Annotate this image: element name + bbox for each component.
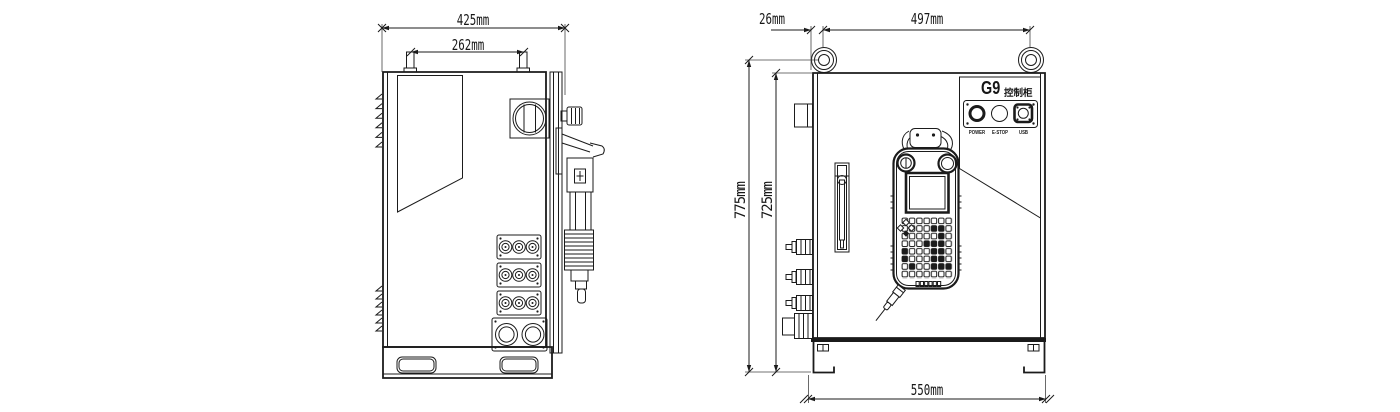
usb-label: USB [1017,130,1030,136]
nameplate-model: G9 [981,78,1000,99]
foot-right [1024,342,1045,373]
dim-label-26: 26mm [750,10,793,28]
drawing-linework [0,0,1400,412]
connector-plate-row2 [497,263,541,287]
teach-pendant-front [872,129,961,324]
dim-label-775: 775mm [733,182,749,219]
dim-label-725: 725mm [760,182,776,219]
nameplate-type: 控制柜 [1004,85,1033,99]
foot-left [814,342,835,373]
front-rail [550,72,562,353]
side-lifting-lugs [404,52,530,72]
dim-26 [771,26,827,70]
door-handle [835,163,849,252]
cable-gland-3 [786,296,813,311]
dim-label-550: 550mm [891,381,963,399]
power-label: POWER [968,130,987,136]
vent-fan [510,99,549,138]
dim-label-425: 425mm [437,11,509,29]
connector-plate-large [492,318,547,351]
usb-port [1015,105,1033,123]
pendant-hanger [910,129,941,148]
lifting-eye-right [1019,48,1044,73]
estop-button [992,106,1008,122]
power-indicator [970,107,984,121]
rear-louver-marks [376,94,382,331]
connector-plate-row3 [497,291,541,315]
pendant-cable-plug [872,285,905,324]
cable-gland-large [783,314,813,339]
dim-497 [823,26,1034,47]
foot-bolts [818,345,1040,352]
dimension-drawing: 425mm 262mm 26mm 497mm 775mm 725mm 550mm… [0,0,1400,412]
teach-pendant-side [556,107,604,303]
dim-label-262: 262mm [432,36,504,54]
side-base [383,347,552,378]
cable-gland-1 [786,240,813,255]
cable-gland-2 [786,270,813,285]
front-view [745,26,1054,403]
base-plate-edge [811,338,1046,342]
side-connector-box [795,104,813,127]
side-vent-panel [398,76,463,213]
dim-725 [772,69,813,376]
connector-plate-row1 [497,235,541,259]
dim-label-497: 497mm [891,10,963,28]
indicator-subpanel [964,101,1038,128]
side-view [376,24,604,378]
estop-label: E-STOP [991,130,1010,136]
